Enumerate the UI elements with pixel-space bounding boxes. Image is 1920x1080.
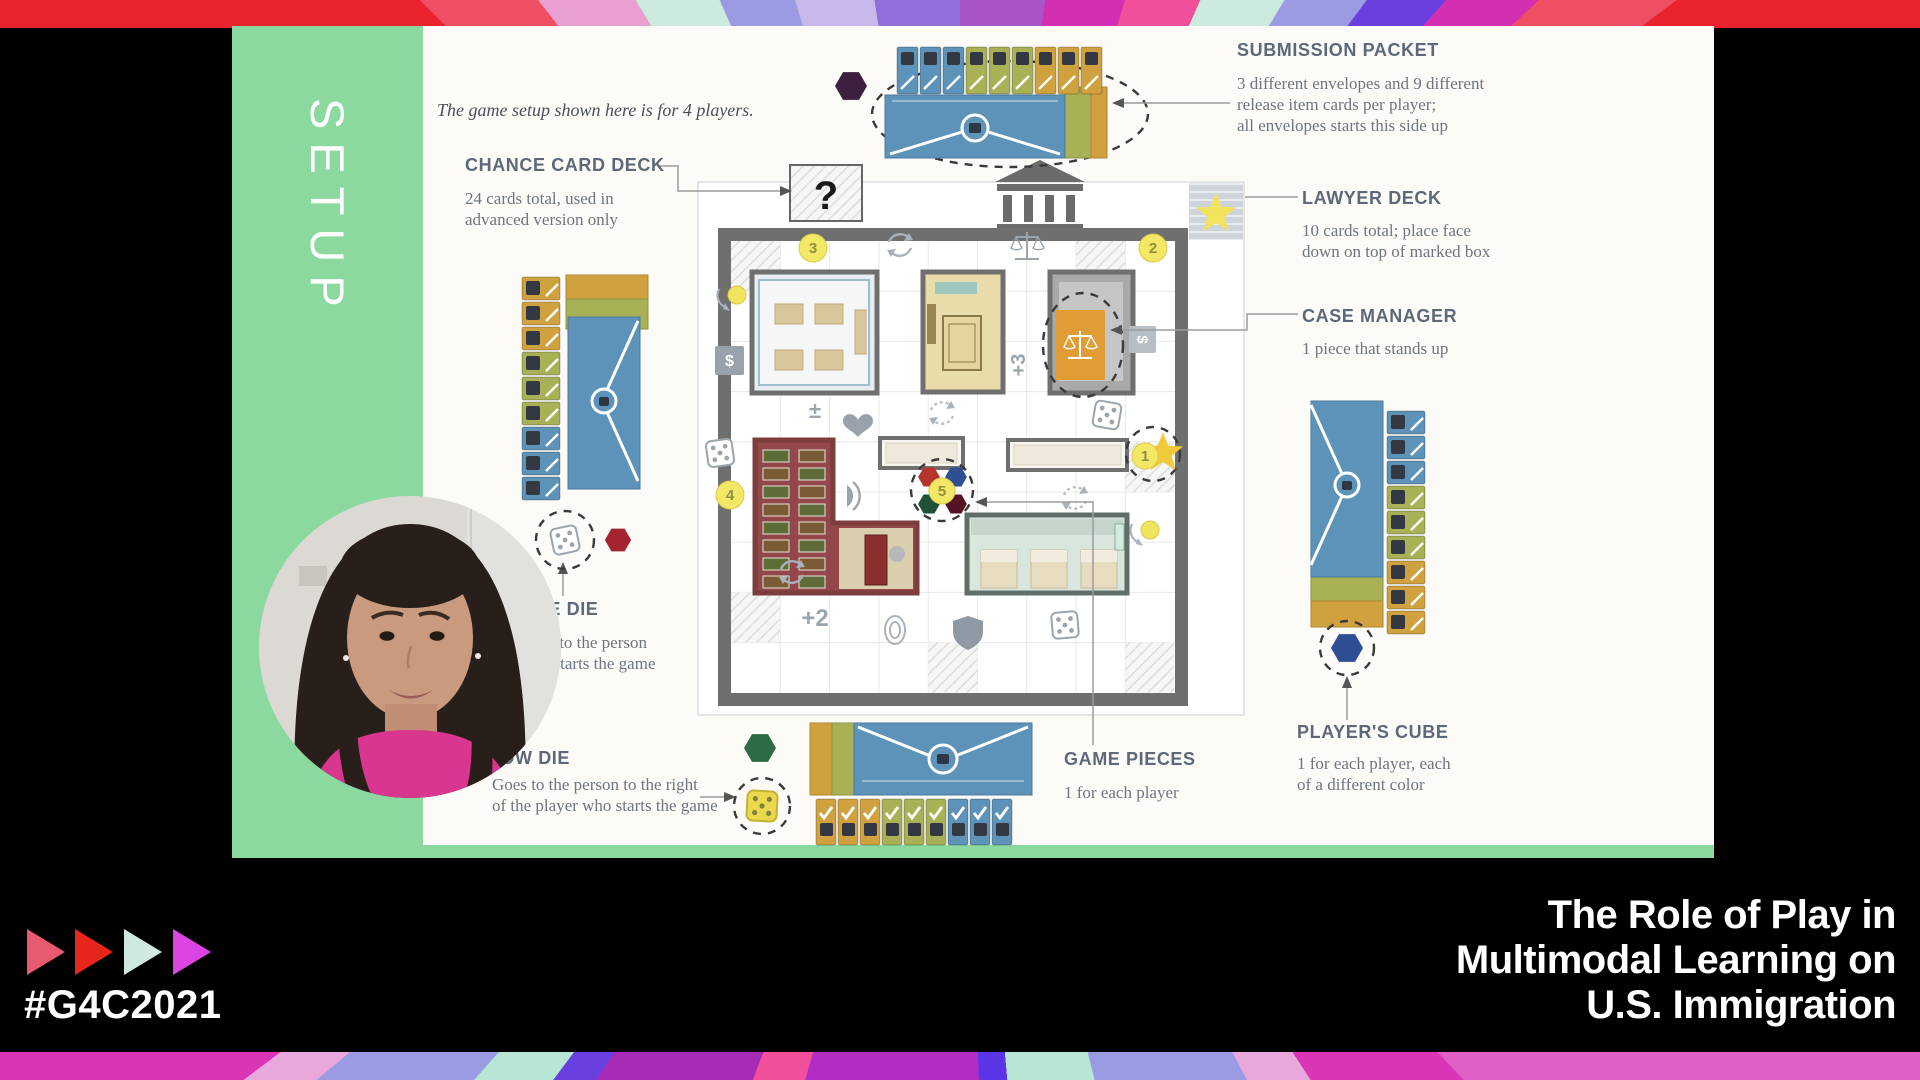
svg-text:1: 1: [1141, 448, 1149, 465]
annotation-submission-packet: SUBMISSION PACKET 3 different envelopes …: [1237, 40, 1484, 136]
annotation-line: 10 cards total; place face: [1302, 220, 1490, 241]
video-frame: SETUP The game setup shown here is for 4…: [0, 0, 1920, 1080]
arrow-triangle-icon: [173, 929, 211, 975]
talk-title: The Role of Play in Multimodal Learning …: [1456, 893, 1896, 1028]
annotation-title: PLAYER'S CUBE: [1297, 722, 1451, 743]
submission-packet-left: [520, 265, 660, 510]
annotation-line: 1 for each player: [1064, 782, 1196, 803]
classroom-room: [752, 272, 877, 393]
chance-card-box: ?: [790, 165, 862, 221]
die-icon: [1092, 400, 1122, 430]
g4c-logo-arrows: [27, 925, 227, 980]
talk-title-line: U.S. Immigration: [1456, 983, 1896, 1028]
annotation-chance-card-deck: CHANCE CARD DECK 24 cards total, used in…: [465, 155, 665, 230]
talk-title-line: Multimodal Learning on: [1456, 938, 1896, 983]
bedroom-room: [967, 515, 1127, 593]
arrow-triangle-icon: [75, 929, 113, 975]
yellow-die-callout: [734, 778, 790, 834]
annotation-line: of a different color: [1297, 774, 1451, 795]
svg-text:5: 5: [938, 483, 946, 500]
question-mark-icon: ?: [814, 174, 838, 218]
annotation-title: CHANCE CARD DECK: [465, 155, 665, 176]
lawyer-room: [1043, 272, 1133, 397]
red-cube-icon: [605, 529, 631, 552]
presenter-portrait: [259, 496, 561, 798]
arrow-triangle-icon: [27, 929, 65, 975]
submission-packet-right: [1295, 395, 1435, 645]
annotation-lawyer-deck: LAWYER DECK 10 cards total; place face d…: [1302, 188, 1490, 262]
annotation-title: SUBMISSION PACKET: [1237, 40, 1484, 61]
intro-note: The game setup shown here is for 4 playe…: [437, 100, 754, 121]
die-icon: [1051, 611, 1079, 639]
annotation-line: all envelopes starts this side up: [1237, 115, 1484, 136]
annotation-line: 1 for each player, each: [1297, 753, 1451, 774]
svg-text:±: ±: [809, 398, 821, 423]
decorative-stripes-top: [0, 0, 1920, 28]
talk-title-line: The Role of Play in: [1456, 893, 1896, 938]
office-room: [923, 272, 1003, 392]
annotation-title: GAME PIECES: [1064, 749, 1196, 770]
annotation-title: LAWYER DECK: [1302, 188, 1490, 209]
decorative-stripes-bottom: [0, 1052, 1920, 1080]
arrow-triangle-icon: [124, 929, 162, 975]
annotation-line: 24 cards total, used in: [465, 188, 665, 209]
submission-packet-bottom: [800, 715, 1040, 850]
presenter-webcam: [259, 496, 561, 798]
annotation-players-cube: PLAYER'S CUBE 1 for each player, each of…: [1297, 722, 1451, 795]
yellow-die-icon: [746, 790, 778, 822]
annotation-title: CASE MANAGER: [1302, 306, 1457, 327]
svg-text:+3: +3: [1008, 354, 1030, 377]
event-hashtag: #G4C2021: [24, 983, 221, 1028]
annotation-line: release item cards per player;: [1237, 94, 1484, 115]
svg-text:3: 3: [809, 240, 817, 257]
purple-cube-icon: [835, 72, 867, 100]
submission-packet-top: [820, 40, 1160, 170]
annotation-game-pieces: GAME PIECES 1 for each player: [1064, 749, 1196, 803]
svg-text:2: 2: [1149, 240, 1157, 257]
annotation-case-manager: CASE MANAGER 1 piece that stands up: [1302, 306, 1457, 359]
slide-section-label: SETUP: [300, 98, 355, 320]
slide-footer-strip: [423, 845, 1714, 858]
die-icon: [705, 438, 734, 467]
annotation-line: of the player who starts the game: [492, 795, 718, 816]
annotation-line: 3 different envelopes and 9 different: [1237, 73, 1484, 94]
dollar-cell: $: [725, 353, 734, 370]
game-board-diagram: ?: [697, 158, 1251, 718]
annotation-line: down on top of marked box: [1302, 241, 1490, 262]
svg-text:4: 4: [726, 487, 735, 504]
annotation-line: 1 piece that stands up: [1302, 338, 1457, 359]
green-cube-icon: [744, 734, 776, 762]
presentation-slide: SETUP The game setup shown here is for 4…: [232, 26, 1714, 858]
svg-text:+2: +2: [801, 605, 828, 632]
dollar-cell: $: [1134, 335, 1151, 344]
annotation-line: advanced version only: [465, 209, 665, 230]
